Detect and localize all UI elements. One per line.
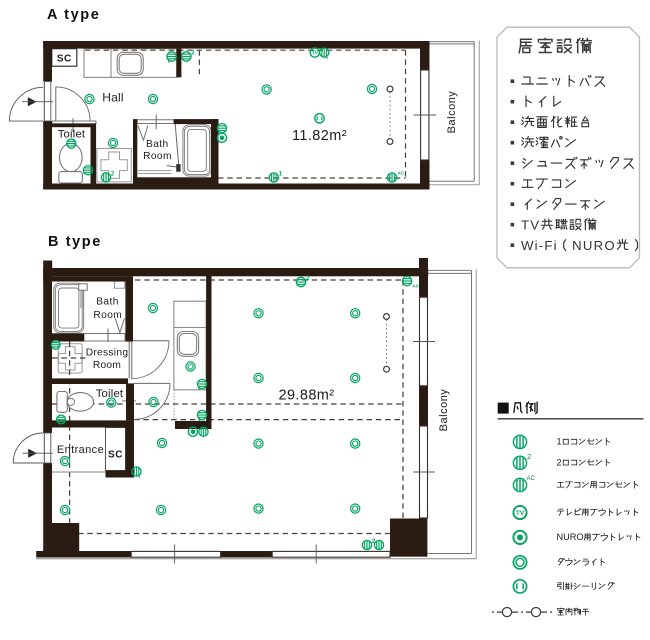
- svg-text:Balcony: Balcony: [438, 389, 450, 432]
- svg-text:AC: AC: [527, 476, 536, 482]
- svg-text:Room: Room: [93, 360, 121, 371]
- svg-text:Bath: Bath: [96, 296, 119, 307]
- svg-text:B type: B type: [48, 234, 102, 250]
- svg-text:SC: SC: [57, 53, 72, 64]
- svg-text:TV: TV: [516, 510, 525, 517]
- svg-text:Balcony: Balcony: [446, 91, 458, 134]
- svg-text:TV: TV: [312, 50, 319, 56]
- svg-text:11.82m²: 11.82m²: [292, 128, 347, 144]
- svg-text:TV: TV: [521, 217, 540, 232]
- svg-text:29.88m²: 29.88m²: [279, 388, 335, 404]
- svg-text:NURO: NURO: [572, 238, 616, 253]
- svg-text:Room: Room: [143, 151, 172, 162]
- svg-text:Room: Room: [93, 310, 122, 321]
- svg-text:Bath: Bath: [146, 139, 169, 150]
- svg-text:2: 2: [527, 452, 531, 461]
- svg-text:1: 1: [557, 437, 562, 447]
- svg-text:Dressing: Dressing: [86, 348, 129, 359]
- svg-text:2: 2: [557, 458, 562, 468]
- svg-text:AC: AC: [398, 171, 405, 176]
- svg-text:Entrance: Entrance: [57, 444, 104, 456]
- svg-text:Hall: Hall: [102, 91, 123, 105]
- svg-text:Wi-Fi: Wi-Fi: [521, 238, 558, 253]
- svg-text:A type: A type: [47, 7, 100, 23]
- svg-text:AC: AC: [413, 284, 420, 289]
- svg-text:SC: SC: [108, 450, 123, 461]
- svg-text:NURO: NURO: [557, 532, 584, 542]
